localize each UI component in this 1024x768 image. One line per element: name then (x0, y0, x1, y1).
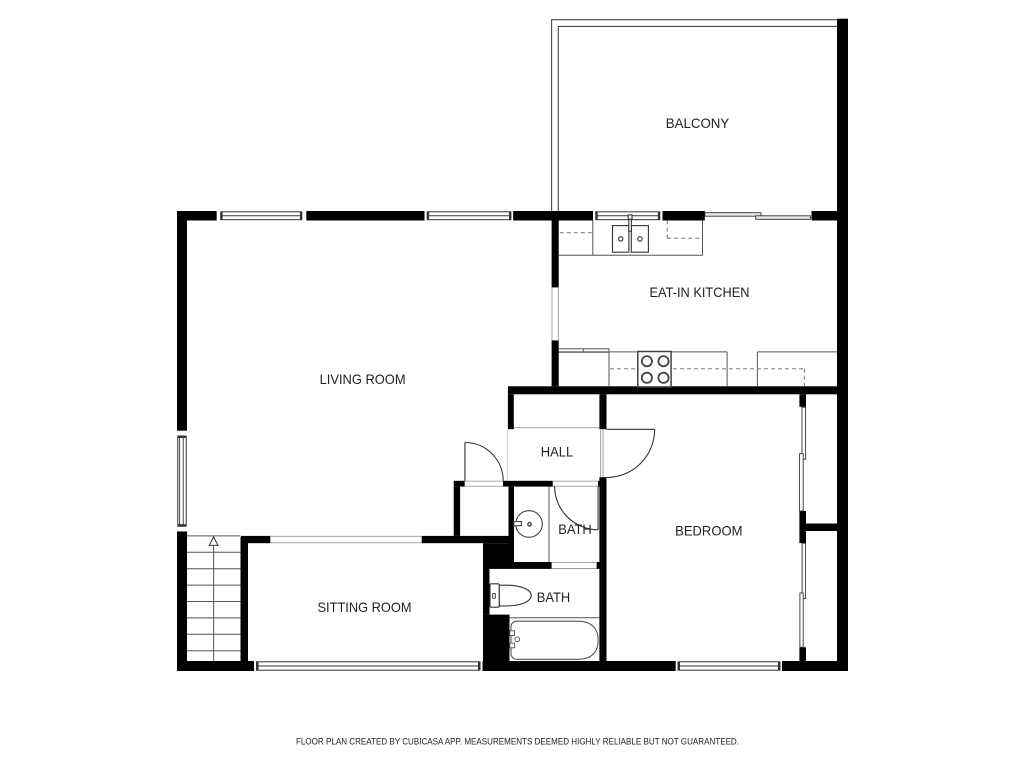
svg-text:SITTING ROOM: SITTING ROOM (318, 599, 412, 615)
svg-text:BEDROOM: BEDROOM (675, 522, 742, 538)
svg-text:EAT-IN KITCHEN: EAT-IN KITCHEN (650, 284, 750, 300)
svg-text:BATH: BATH (537, 589, 571, 605)
svg-text:HALL: HALL (541, 444, 574, 460)
svg-text:BALCONY: BALCONY (666, 115, 730, 131)
svg-text:FLOOR PLAN CREATED BY CUBICASA: FLOOR PLAN CREATED BY CUBICASA APP. MEAS… (296, 736, 739, 746)
svg-text:BATH: BATH (558, 521, 592, 537)
svg-text:LIVING ROOM: LIVING ROOM (320, 371, 406, 387)
